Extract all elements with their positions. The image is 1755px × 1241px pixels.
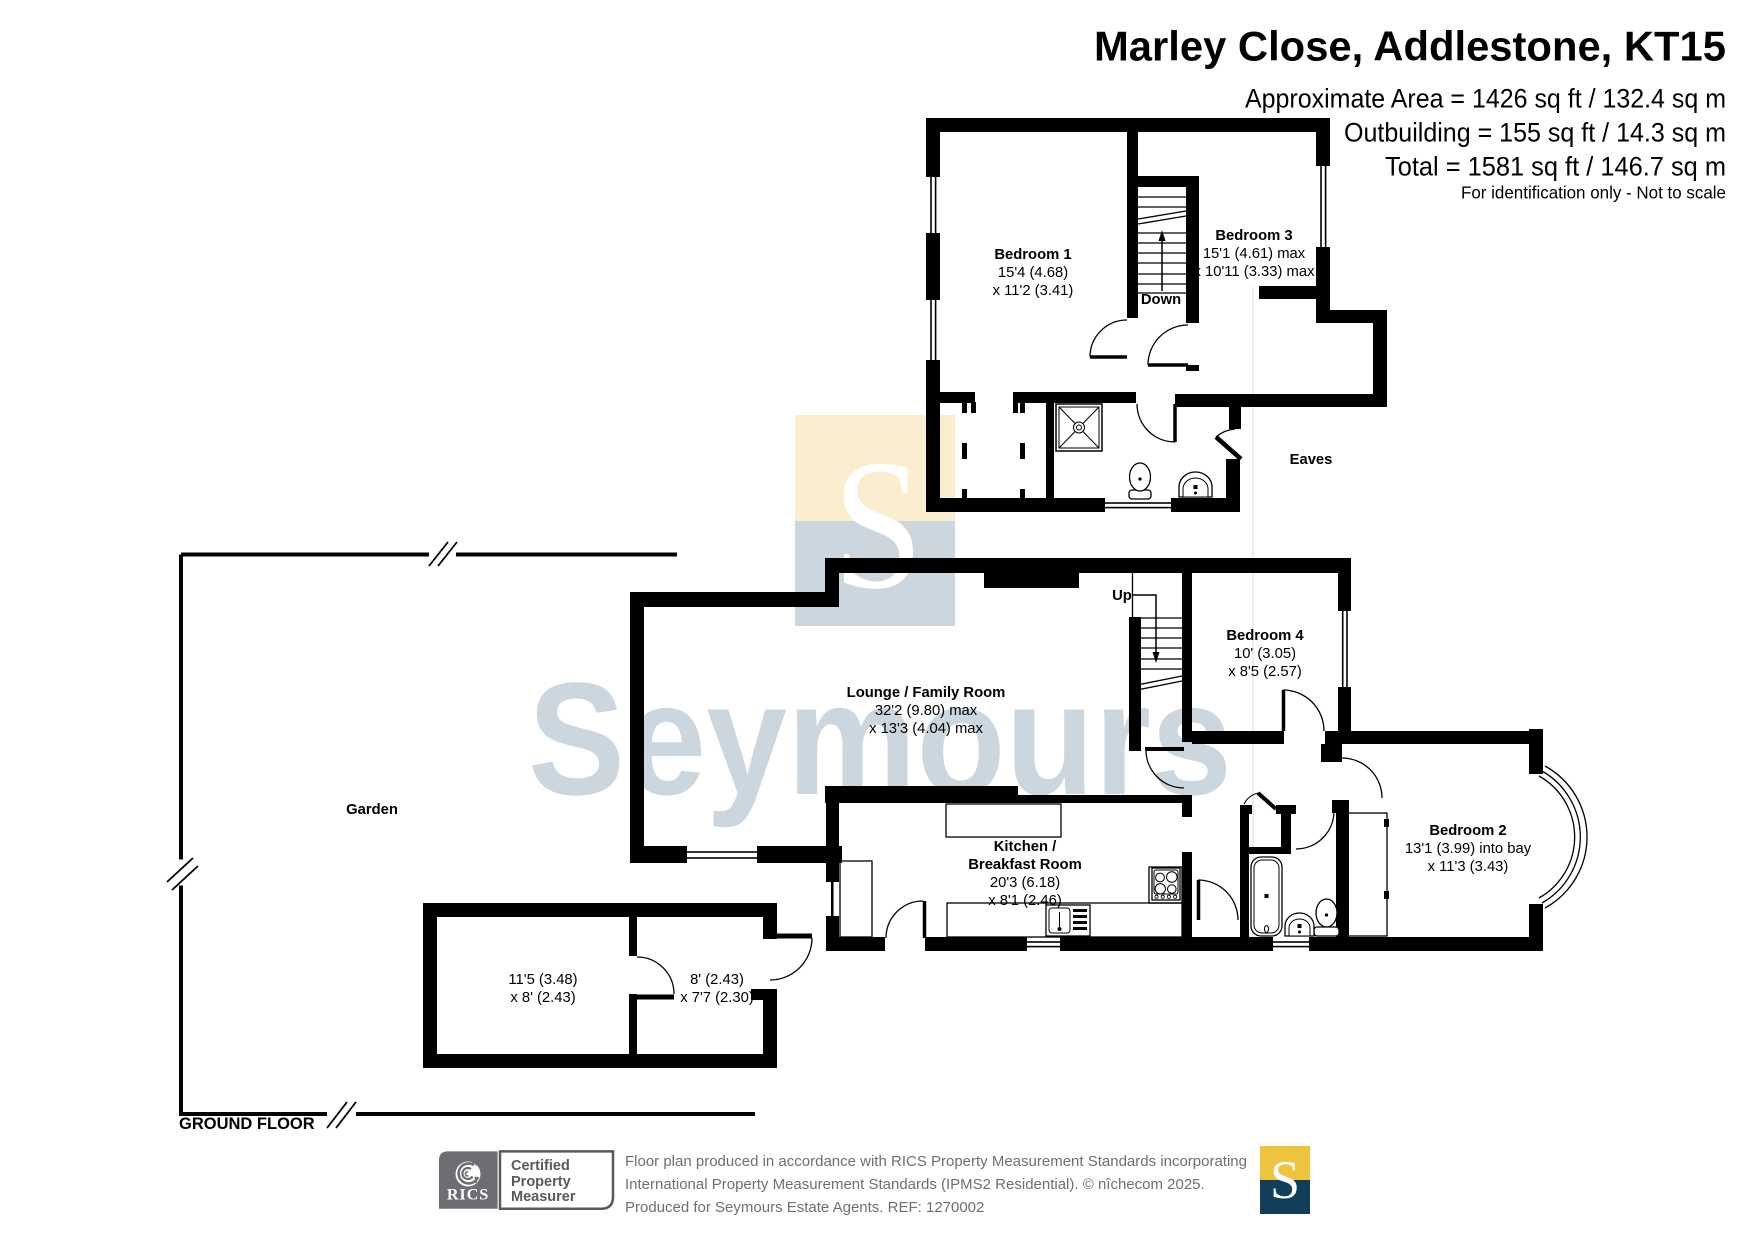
svg-text:International Property Measure: International Property Measurement Stand… <box>625 1176 1205 1193</box>
svg-text:Garden: Garden <box>346 802 398 818</box>
svg-text:Bedroom 3: Bedroom 3 <box>1215 228 1292 244</box>
svg-text:Kitchen /: Kitchen / <box>994 839 1056 855</box>
svg-text:RICS: RICS <box>447 1186 489 1204</box>
svg-text:Outbuilding = 155 sq ft / 14.3: Outbuilding = 155 sq ft / 14.3 sq m <box>1344 118 1726 148</box>
svg-text:10' (3.05): 10' (3.05) <box>1234 646 1296 662</box>
svg-text:Marley Close, Addlestone, KT15: Marley Close, Addlestone, KT15 <box>1094 23 1726 70</box>
svg-text:x 13'3 (4.04) max: x 13'3 (4.04) max <box>869 721 983 737</box>
svg-text:Breakfast Room: Breakfast Room <box>968 857 1081 873</box>
svg-text:S: S <box>833 422 923 628</box>
svg-text:Property: Property <box>511 1174 571 1190</box>
svg-text:Bedroom 2: Bedroom 2 <box>1429 823 1506 839</box>
svg-text:13'1 (3.99) into bay: 13'1 (3.99) into bay <box>1405 841 1532 857</box>
svg-text:Eaves: Eaves <box>1290 452 1333 468</box>
svg-text:20'3 (6.18): 20'3 (6.18) <box>990 875 1060 891</box>
svg-text:Total = 1581 sq ft / 146.7 sq: Total = 1581 sq ft / 146.7 sq m <box>1385 152 1726 182</box>
svg-text:Certified: Certified <box>511 1158 570 1174</box>
svg-text:15'4 (4.68): 15'4 (4.68) <box>998 265 1068 281</box>
svg-text:GROUND FLOOR: GROUND FLOOR <box>179 1115 315 1133</box>
svg-text:Up: Up <box>1112 588 1132 604</box>
svg-text:32'2 (9.80) max: 32'2 (9.80) max <box>875 703 978 719</box>
svg-text:Lounge / Family Room: Lounge / Family Room <box>847 685 1006 701</box>
svg-text:x 10'11 (3.33) max: x 10'11 (3.33) max <box>1194 264 1316 280</box>
svg-text:x 8'5 (2.57): x 8'5 (2.57) <box>1228 664 1302 680</box>
svg-text:x 8' (2.43): x 8' (2.43) <box>510 990 575 1006</box>
svg-text:15'1 (4.61) max: 15'1 (4.61) max <box>1203 246 1306 262</box>
svg-text:8' (2.43): 8' (2.43) <box>690 972 744 988</box>
svg-text:11'5 (3.48): 11'5 (3.48) <box>508 972 577 988</box>
svg-text:Floor plan produced in accorda: Floor plan produced in accordance with R… <box>625 1153 1247 1170</box>
svg-text:For identification only - Not: For identification only - Not to scale <box>1461 183 1726 203</box>
svg-text:S: S <box>1270 1150 1300 1210</box>
svg-text:Bedroom 1: Bedroom 1 <box>994 247 1071 263</box>
svg-text:x 11'3 (3.43): x 11'3 (3.43) <box>1428 859 1509 875</box>
svg-text:Measurer: Measurer <box>511 1189 576 1205</box>
svg-text:Produced for Seymours Estate A: Produced for Seymours Estate Agents. REF… <box>625 1199 984 1216</box>
svg-text:Down: Down <box>1141 292 1181 308</box>
svg-text:Approximate Area = 1426 sq ft: Approximate Area = 1426 sq ft / 132.4 sq… <box>1245 84 1726 114</box>
svg-text:x 7'7 (2.30): x 7'7 (2.30) <box>680 990 754 1006</box>
svg-text:Bedroom 4: Bedroom 4 <box>1226 628 1304 644</box>
svg-text:x 8'1 (2.46): x 8'1 (2.46) <box>988 893 1062 909</box>
svg-text:x 11'2 (3.41): x 11'2 (3.41) <box>993 283 1074 299</box>
